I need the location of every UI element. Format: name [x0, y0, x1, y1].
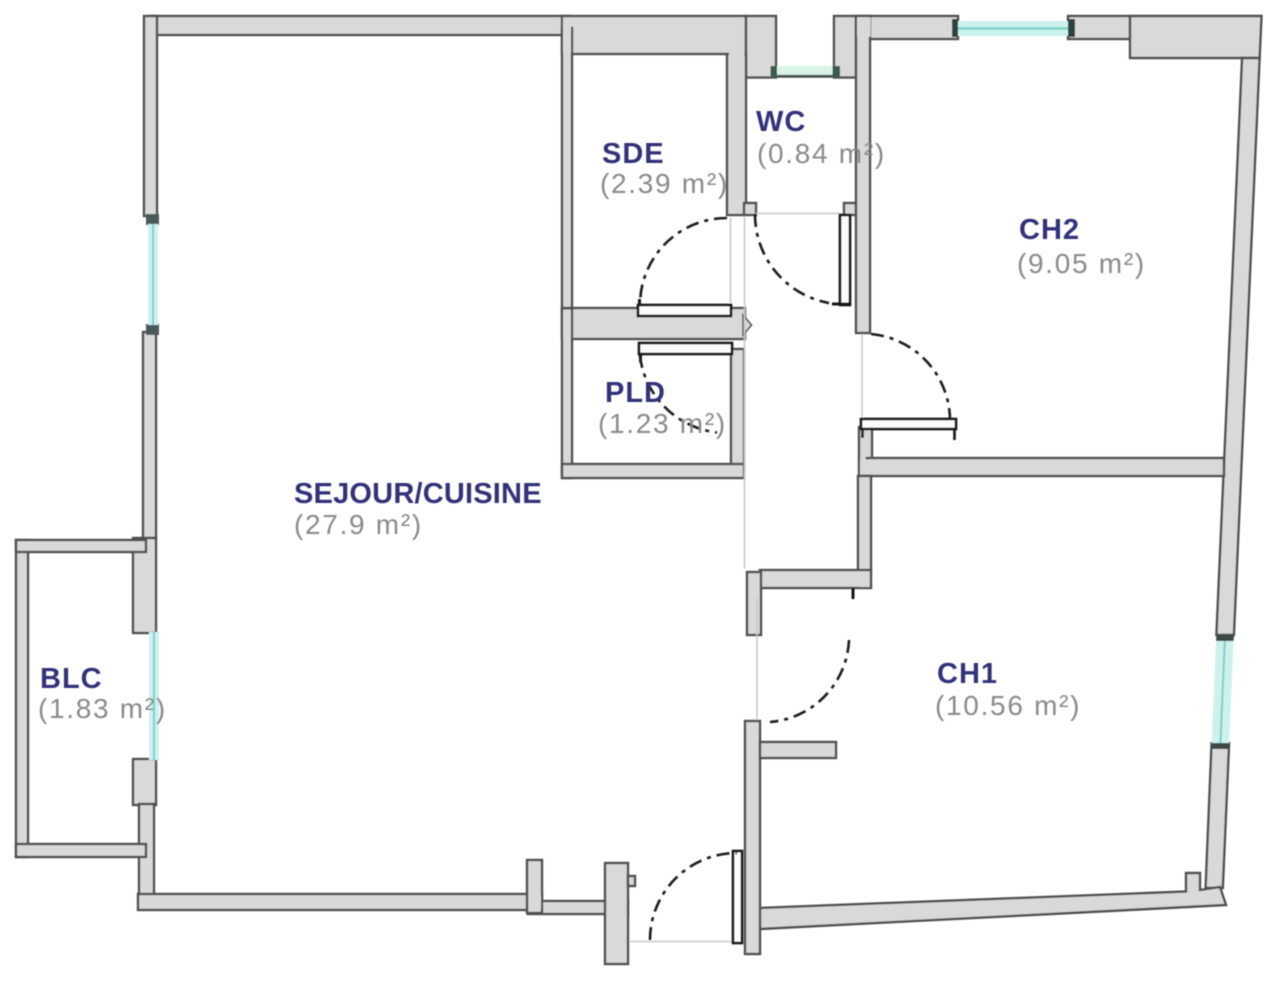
svg-text:PLD: PLD [605, 377, 666, 409]
svg-text:CH2: CH2 [1019, 214, 1080, 246]
svg-text:(1.83 m²): (1.83 m²) [38, 693, 167, 724]
svg-text:(0.84 m²): (0.84 m²) [757, 138, 886, 169]
svg-text:WC: WC [756, 106, 806, 138]
svg-text:(9.05 m²): (9.05 m²) [1017, 248, 1146, 279]
svg-text:(27.9 m²): (27.9 m²) [294, 509, 423, 540]
svg-text:BLC: BLC [40, 663, 103, 695]
svg-text:(2.39 m²): (2.39 m²) [600, 168, 729, 199]
svg-text:(10.56 m²): (10.56 m²) [935, 690, 1081, 721]
svg-text:SDE: SDE [602, 138, 665, 170]
svg-text:SEJOUR/CUISINE: SEJOUR/CUISINE [294, 478, 542, 510]
svg-text:(1.23 m²): (1.23 m²) [598, 408, 727, 439]
svg-text:CH1: CH1 [937, 658, 998, 690]
